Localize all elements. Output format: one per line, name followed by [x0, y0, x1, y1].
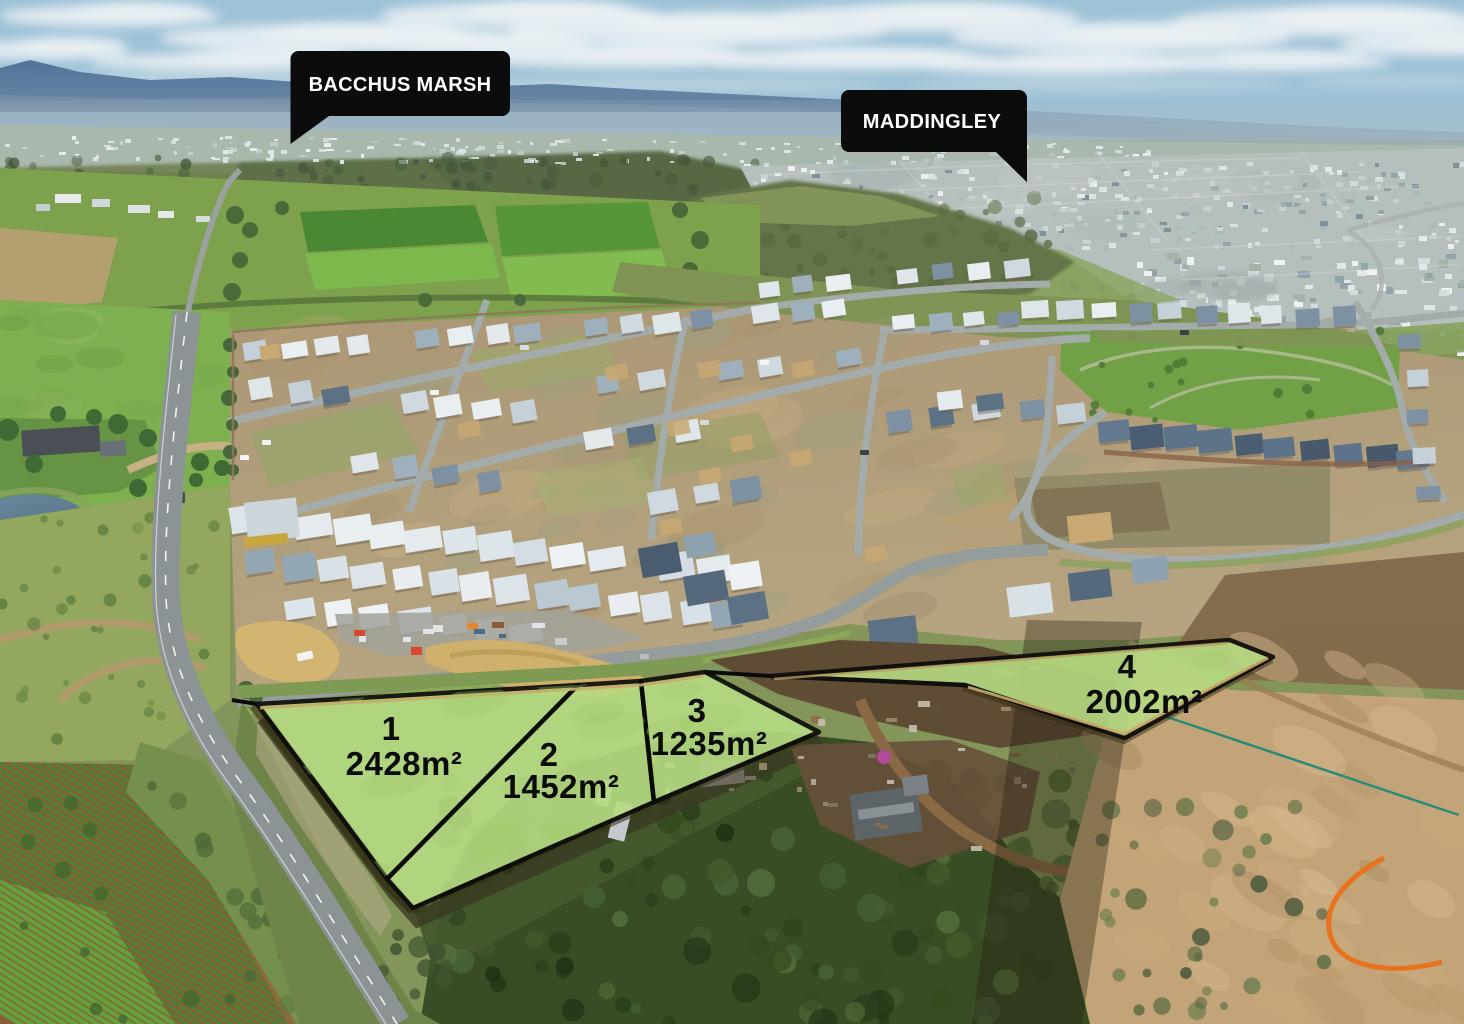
svg-text:MADDINGLEY: MADDINGLEY: [863, 111, 1002, 133]
svg-text:1: 1: [382, 710, 401, 747]
svg-text:1452m²: 1452m²: [503, 768, 620, 805]
svg-text:1235m²: 1235m²: [651, 725, 768, 762]
svg-text:2002m²: 2002m²: [1086, 683, 1203, 720]
svg-text:BACCHUS MARSH: BACCHUS MARSH: [309, 74, 492, 96]
svg-text:2428m²: 2428m²: [346, 745, 463, 782]
svg-text:3: 3: [688, 692, 707, 729]
svg-text:4: 4: [1118, 648, 1137, 685]
